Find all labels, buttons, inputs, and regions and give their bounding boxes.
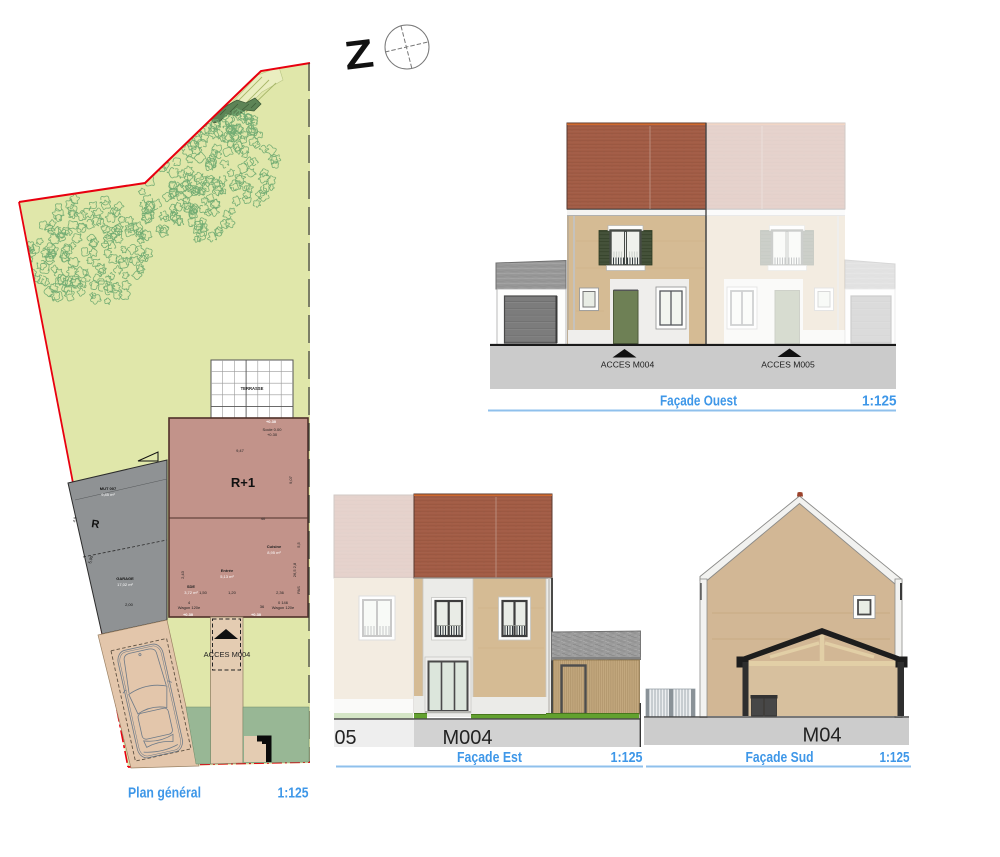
svg-text:9,07: 9,07 [288,475,293,484]
svg-text:ACCES M004: ACCES M004 [204,650,251,659]
svg-text:M004: M004 [443,726,493,749]
svg-text:M04: M04 [803,724,842,747]
svg-text:17,02 m²: 17,02 m² [117,582,133,587]
svg-text:2,43: 2,43 [180,570,185,579]
svg-text:SDE: SDE [187,584,196,589]
svg-text:26,5 2,8: 26,5 2,8 [292,562,297,577]
svg-text:1,20: 1,20 [228,590,237,595]
svg-text:GARAGE: GARAGE [116,576,134,581]
svg-text:Z: Z [342,32,376,79]
svg-text:Façade Est: Façade Est [457,750,522,766]
svg-text:+0.30: +0.30 [266,419,277,424]
svg-text:5,5: 5,5 [296,541,301,547]
svg-text:1:125: 1:125 [611,750,643,766]
svg-text:MUT 007: MUT 007 [100,486,117,491]
svg-text:9,85 m²: 9,85 m² [101,492,115,497]
svg-text:3,72 m²: 3,72 m² [184,590,198,595]
svg-text:36: 36 [260,604,265,609]
svg-text:Façade Sud: Façade Sud [746,750,814,766]
svg-text:TERRASSE: TERRASSE [241,386,264,391]
svg-text:1:125: 1:125 [278,786,309,802]
svg-text:Façade Ouest: Façade Ouest [660,394,737,410]
svg-text:2,00: 2,00 [125,602,134,607]
svg-text:ACCES M004: ACCES M004 [601,360,655,370]
svg-text:ACCES M005: ACCES M005 [761,360,815,370]
svg-text:Wagon 120e: Wagon 120e [178,605,201,610]
svg-text:9,47: 9,47 [236,448,245,453]
svg-text:R+1: R+1 [231,475,255,490]
svg-text:05: 05 [335,726,357,749]
svg-text:Plan général: Plan général [128,786,201,802]
svg-text:Entrée: Entrée [221,568,234,573]
svg-text:2,36: 2,36 [276,590,285,595]
svg-text:Cuisine: Cuisine [267,544,282,549]
svg-text:1,50: 1,50 [199,590,208,595]
svg-text:+0.30: +0.30 [251,612,262,617]
svg-text:8,95 m²: 8,95 m² [267,550,281,555]
svg-text:Wagon 120e: Wagon 120e [272,605,295,610]
svg-text:1:125: 1:125 [862,394,897,410]
svg-text:PAS: PAS [296,586,301,594]
svg-text:5,13 m²: 5,13 m² [220,574,234,579]
svg-text:40: 40 [261,516,266,521]
svg-text:+0.30: +0.30 [183,612,194,617]
svg-text:+0.30: +0.30 [267,432,278,437]
svg-text:1:125: 1:125 [880,750,910,766]
